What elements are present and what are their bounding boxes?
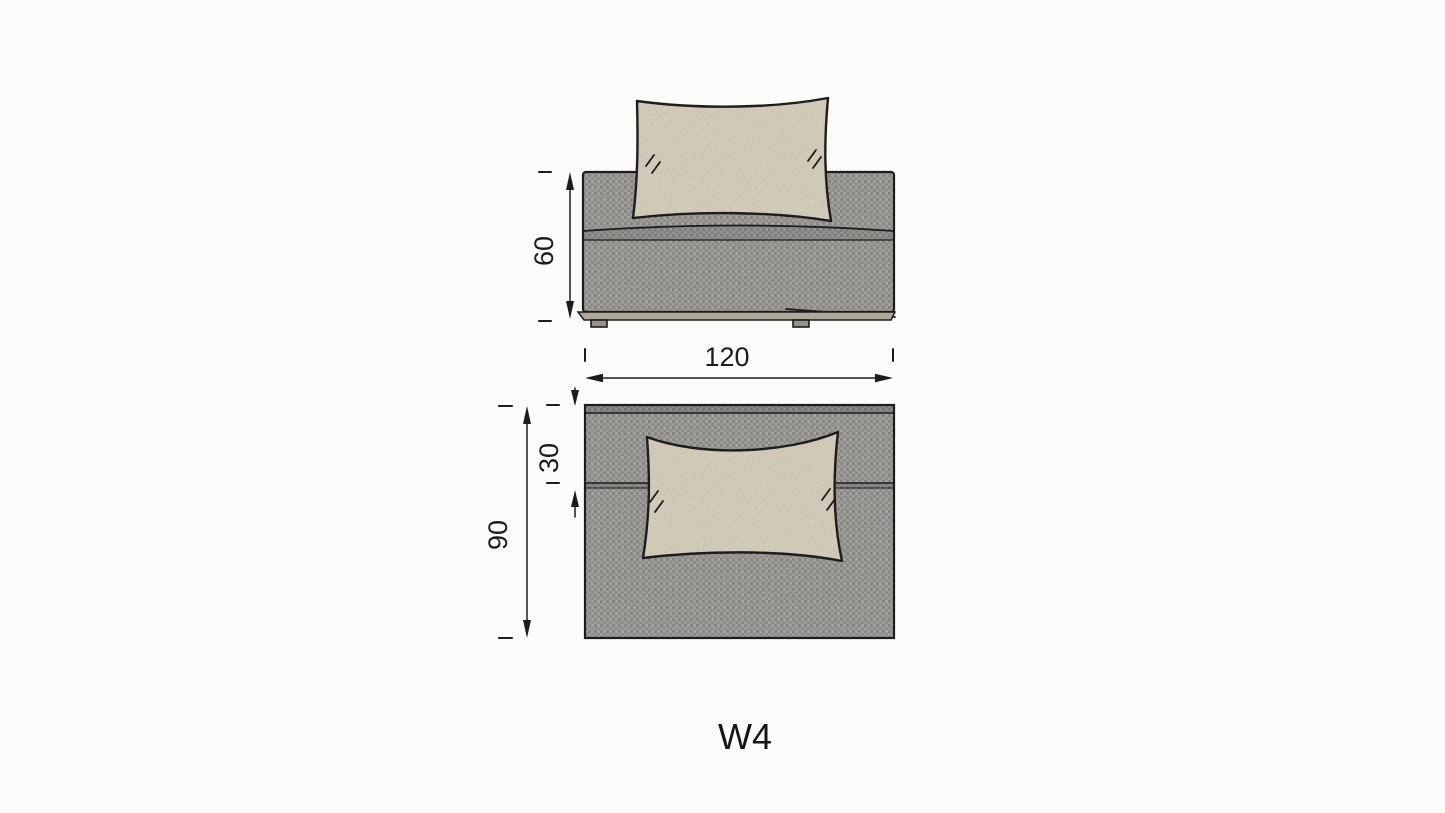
dim-width-label: 120 xyxy=(704,342,749,372)
furniture-dimension-diagram: 60 120 xyxy=(0,0,1445,813)
dim-arrowhead-up xyxy=(523,406,531,424)
front-plinth xyxy=(578,312,895,320)
front-view xyxy=(578,98,895,327)
dim-arrowhead-right xyxy=(875,374,893,383)
dim-depth-label: 90 xyxy=(483,520,513,550)
front-foot-left xyxy=(591,320,607,327)
dim-width-120: 120 xyxy=(585,342,893,382)
dim-back-depth-label: 30 xyxy=(534,443,564,473)
dim-back-depth-30: 30 xyxy=(534,388,579,517)
front-pillow-grain-texture xyxy=(633,98,831,221)
dim-arrowhead-left xyxy=(585,374,603,383)
front-foot-right xyxy=(793,320,809,327)
dim-arrowhead-down xyxy=(523,620,531,638)
module-code-label: W4 xyxy=(718,716,772,757)
top-back-edge-band xyxy=(585,405,894,413)
top-pillow-grain-texture xyxy=(643,432,842,561)
dim-arrowhead-down xyxy=(566,301,574,319)
dim-arrowhead-up xyxy=(571,490,579,507)
top-pillow xyxy=(643,432,842,561)
dim-height-60: 60 xyxy=(529,172,574,321)
dim-height-label: 60 xyxy=(529,236,559,266)
dim-depth-90: 90 xyxy=(483,406,531,638)
dim-arrowhead-up xyxy=(566,172,574,190)
dim-arrowhead-down xyxy=(571,390,579,406)
top-view xyxy=(585,405,894,638)
technical-drawing-page: 60 120 xyxy=(0,0,1445,813)
front-pillow xyxy=(633,98,831,221)
